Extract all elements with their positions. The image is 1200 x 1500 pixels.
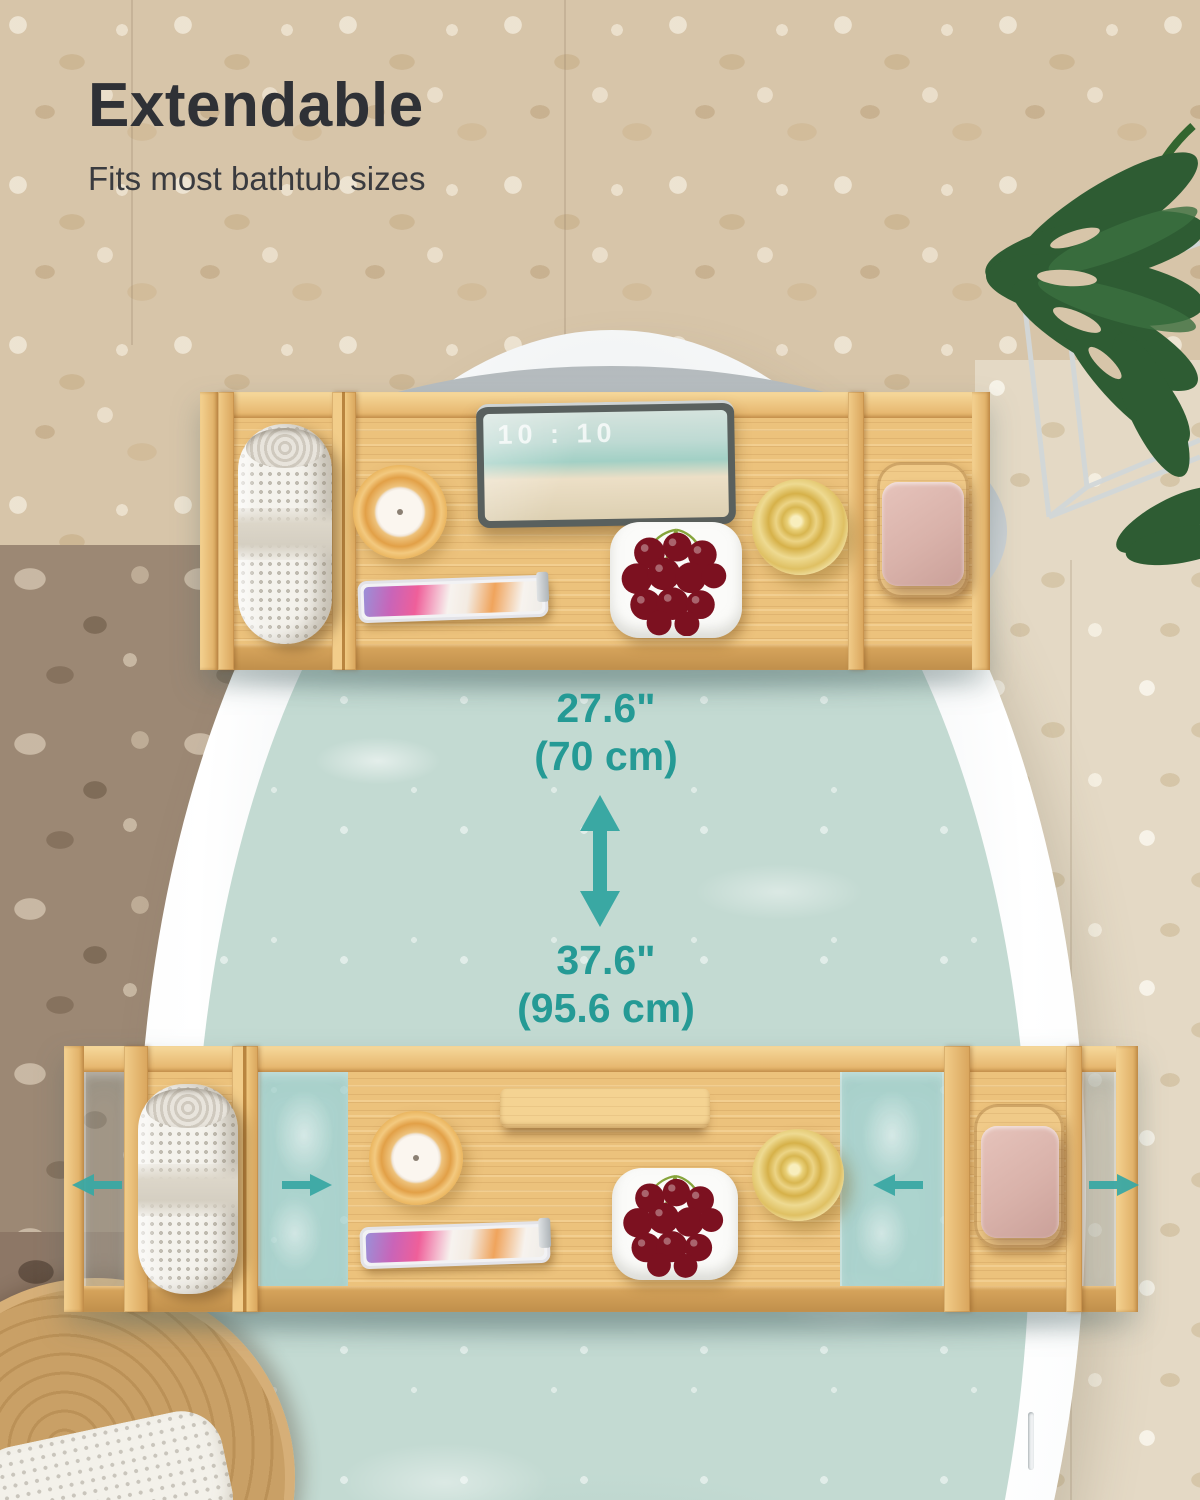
candle <box>353 465 447 559</box>
tray-end-bar <box>972 392 990 670</box>
extend-arrow-right-in-icon <box>873 1172 923 1198</box>
phone-stand-clip <box>538 1218 551 1248</box>
compact-length-cm: (70 cm) <box>441 732 771 780</box>
cherry-plate <box>610 522 742 638</box>
wine-glass <box>752 479 848 575</box>
tablet-rest <box>500 1088 710 1128</box>
soap-bar <box>882 482 964 586</box>
smartphone-screen <box>366 1227 545 1263</box>
tray-slat <box>1066 1046 1082 1312</box>
rolled-towel <box>238 424 332 644</box>
candle <box>369 1111 463 1205</box>
rolled-towel <box>138 1084 238 1294</box>
tablet-clock: 10 : 10 <box>497 418 617 451</box>
tray-bottom-rail <box>64 1286 1138 1312</box>
extended-length-label: 37.6" (95.6 cm) <box>431 936 781 1032</box>
tablet: 10 : 10 <box>476 400 736 528</box>
wine-glass <box>752 1129 844 1221</box>
cherries <box>615 1170 736 1278</box>
candle-wick <box>413 1155 419 1161</box>
extend-arrow-vertical-icon <box>580 795 620 927</box>
page-subtitle: Fits most bathtub sizes <box>88 160 425 198</box>
compact-length-label: 27.6" (70 cm) <box>441 684 771 780</box>
extend-arrow-left-out-icon <box>72 1172 122 1198</box>
candle-wick <box>397 509 403 515</box>
tray-slat <box>848 392 864 670</box>
tray-top-rail <box>64 1046 1138 1072</box>
phone-stand-clip <box>536 572 549 602</box>
wall-tile-seam <box>564 0 566 335</box>
tray-slat <box>332 392 356 670</box>
extended-length-cm: (95.6 cm) <box>431 984 781 1032</box>
soap-bar <box>981 1126 1059 1238</box>
tray-bottom-rail <box>200 644 990 670</box>
extended-length-inches: 37.6" <box>431 936 781 984</box>
tablet-screen: 10 : 10 <box>483 410 729 521</box>
cherries <box>613 524 740 635</box>
tray-end-bar <box>200 392 218 670</box>
compact-length-inches: 27.6" <box>441 684 771 732</box>
page-title: Extendable <box>88 70 424 141</box>
tray-slat <box>944 1046 970 1312</box>
bathtub-overflow-slit <box>1028 1412 1034 1470</box>
smartphone <box>359 1221 550 1270</box>
product-image: 10 : 10 <box>0 0 1200 1500</box>
compact-tray: 10 : 10 <box>200 392 990 670</box>
tray-slat <box>218 392 234 670</box>
smartphone-screen <box>364 581 543 617</box>
extended-tray <box>64 1046 1138 1312</box>
extend-arrow-left-in-icon <box>282 1172 332 1198</box>
extend-arrow-right-out-icon <box>1089 1172 1139 1198</box>
smartphone <box>357 575 548 624</box>
cherry-plate <box>612 1168 738 1280</box>
